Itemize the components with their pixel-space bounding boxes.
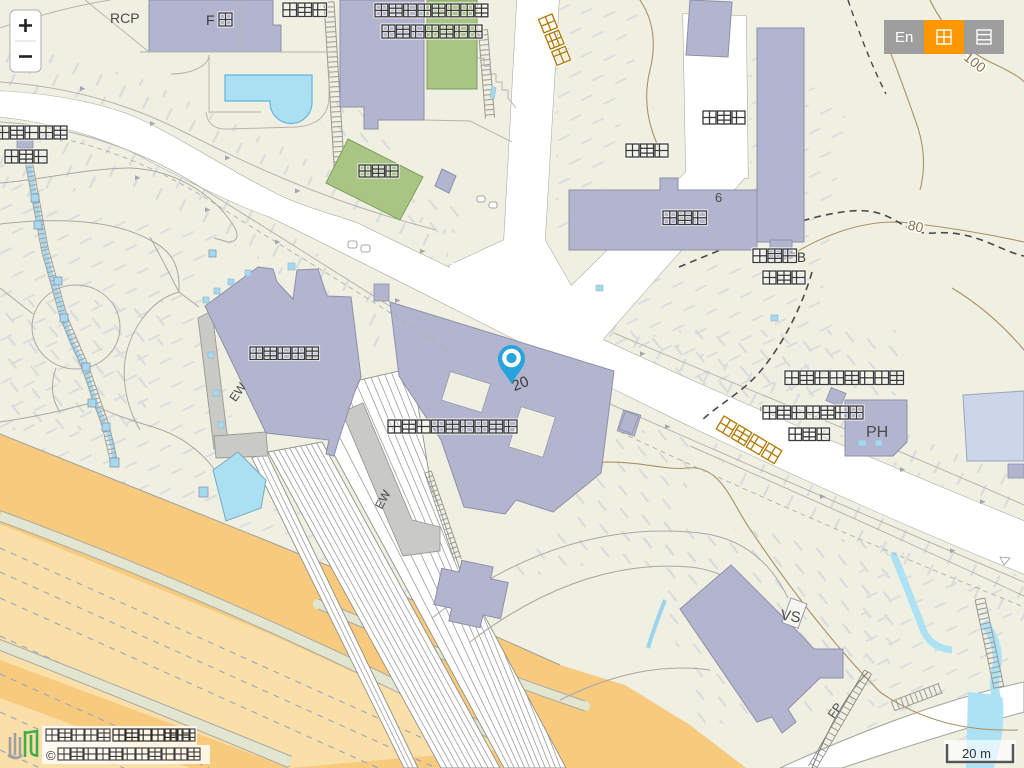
svg-text:20 m: 20 m: [962, 746, 991, 761]
svg-text:B: B: [797, 250, 806, 265]
svg-text:©: ©: [46, 748, 56, 763]
svg-text:RCP: RCP: [110, 10, 140, 26]
svg-text:6: 6: [715, 190, 722, 205]
svg-text:VS: VS: [780, 607, 802, 627]
svg-text:PH: PH: [866, 424, 888, 441]
svg-text:F: F: [206, 12, 215, 28]
svg-text:En: En: [895, 29, 913, 46]
